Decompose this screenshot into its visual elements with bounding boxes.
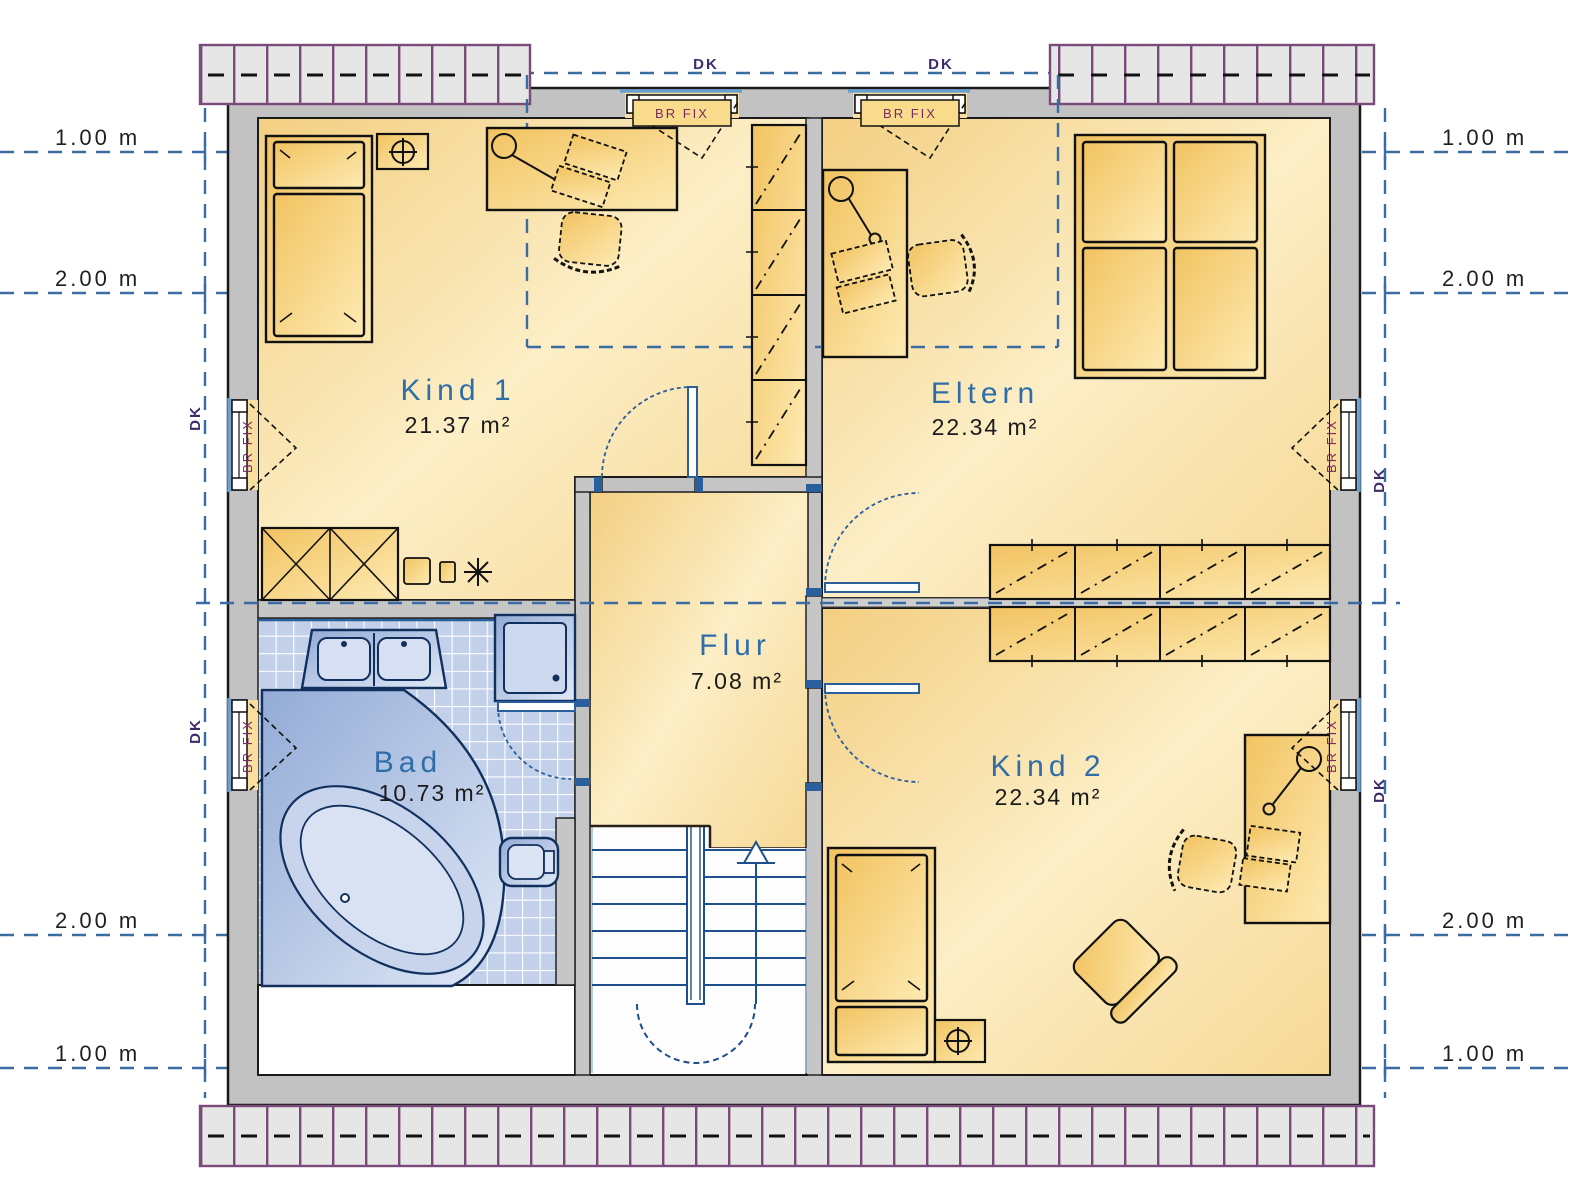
dimension-labels-right: 1.00 m 2.00 m 2.00 m 1.00 m bbox=[1442, 125, 1527, 1066]
br-fix-label-left-1: BR FIX bbox=[240, 419, 255, 473]
stair-railing bbox=[687, 826, 704, 1004]
kind2-nightstand bbox=[935, 1020, 985, 1062]
eltern-desk bbox=[823, 170, 907, 357]
dim-label: 2.00 m bbox=[55, 266, 140, 291]
dk-label-right-1: DK bbox=[1371, 467, 1388, 493]
bad-vanity-double-sink bbox=[302, 630, 446, 688]
kind2-wardrobe-row bbox=[990, 607, 1330, 667]
room-label-flur: Flur bbox=[699, 629, 771, 662]
room-label-bad: Bad bbox=[374, 746, 442, 779]
br-fix-label-left-2: BR FIX bbox=[240, 719, 255, 773]
eltern-wardrobe-row bbox=[990, 539, 1330, 599]
dim-label: 2.00 m bbox=[1442, 266, 1527, 291]
knee-wall-storage-area bbox=[258, 985, 575, 1075]
dk-label-left-1: DK bbox=[187, 405, 204, 431]
kind1-wall-shelf bbox=[746, 125, 806, 465]
room-area-kind2: 22.34 m² bbox=[995, 784, 1102, 810]
dim-label: 1.00 m bbox=[1442, 1041, 1527, 1066]
dim-label: 1.00 m bbox=[1442, 125, 1527, 150]
room-area-flur: 7.08 m² bbox=[691, 668, 783, 694]
br-fix-label-top-2: BR FIX bbox=[883, 106, 937, 121]
dk-label-right-2: DK bbox=[1371, 777, 1388, 803]
roof-eave-band-top-left bbox=[200, 45, 530, 104]
kind2-desk bbox=[1239, 735, 1330, 923]
room-area-eltern: 22.34 m² bbox=[932, 414, 1039, 440]
room-label-kind2: Kind 2 bbox=[990, 750, 1105, 783]
eltern-double-bed bbox=[1075, 135, 1265, 378]
kind1-cabinet bbox=[262, 528, 398, 600]
plant-icon bbox=[464, 558, 492, 586]
roof-eave-band-top-right bbox=[1050, 45, 1374, 104]
kind1-bed bbox=[266, 136, 372, 342]
room-label-eltern: Eltern bbox=[931, 377, 1039, 410]
dim-label: 1.00 m bbox=[55, 125, 140, 150]
dk-label-top-2: DK bbox=[928, 56, 954, 73]
dk-label-left-2: DK bbox=[187, 718, 204, 744]
room-area-bad: 10.73 m² bbox=[379, 780, 486, 806]
kind2-bed bbox=[828, 848, 935, 1062]
br-fix-label-right-2: BR FIX bbox=[1324, 719, 1339, 773]
room-label-kind1: Kind 1 bbox=[400, 374, 515, 407]
room-area-kind1: 21.37 m² bbox=[405, 412, 512, 438]
dim-label: 2.00 m bbox=[55, 908, 140, 933]
dimension-labels-left: 1.00 m 2.00 m 2.00 m 1.00 m bbox=[55, 125, 140, 1066]
kind1-nightstand bbox=[377, 134, 428, 169]
floor-plan: 1.00 m 2.00 m 2.00 m 1.00 m 1.00 m 2.00 … bbox=[0, 0, 1574, 1200]
br-fix-label-right-1: BR FIX bbox=[1324, 419, 1339, 473]
dim-label: 2.00 m bbox=[1442, 908, 1527, 933]
dim-label: 1.00 m bbox=[55, 1041, 140, 1066]
kind1-small-items bbox=[404, 558, 455, 584]
bad-shower bbox=[495, 615, 575, 701]
br-fix-label-top-1: BR FIX bbox=[655, 106, 709, 121]
roof-eave-band-bottom bbox=[200, 1106, 1374, 1166]
bad-toilet bbox=[500, 838, 558, 886]
floor-plan-svg: 1.00 m 2.00 m 2.00 m 1.00 m 1.00 m 2.00 … bbox=[0, 0, 1574, 1200]
kind1-desk bbox=[487, 128, 677, 210]
dk-label-top-1: DK bbox=[693, 56, 719, 73]
